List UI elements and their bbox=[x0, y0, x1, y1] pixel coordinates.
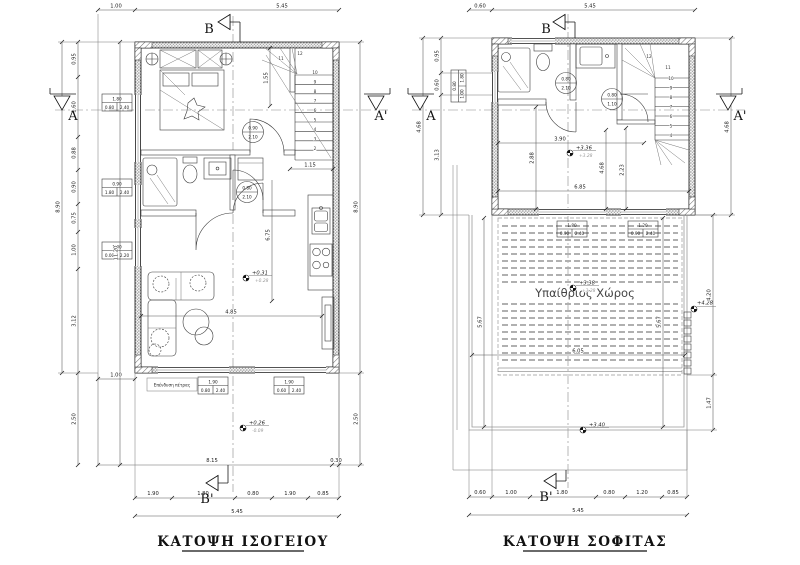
stair-number: 6 bbox=[670, 114, 673, 119]
svg-text:1.20: 1.20 bbox=[636, 490, 648, 496]
svg-text:1.15: 1.15 bbox=[304, 163, 316, 169]
svg-text:1.10: 1.10 bbox=[607, 102, 617, 107]
svg-text:2.20: 2.20 bbox=[120, 253, 130, 258]
corner-hatch-blocks bbox=[135, 42, 339, 373]
svg-text:3.90: 3.90 bbox=[554, 137, 566, 143]
section-letter: A bbox=[425, 109, 436, 124]
svg-text:2.40: 2.40 bbox=[216, 388, 226, 393]
svg-text:2.50: 2.50 bbox=[354, 413, 360, 425]
svg-text:4.20: 4.20 bbox=[707, 289, 713, 301]
attic-stairs: 4 5 6 7 8 9 10 11 12 bbox=[622, 44, 689, 165]
exterior-step-blocks bbox=[684, 312, 691, 374]
svg-text:0.60: 0.60 bbox=[435, 79, 441, 91]
svg-text:0.75: 0.75 bbox=[72, 212, 78, 224]
level-sub-value: +0.28 bbox=[255, 278, 269, 284]
svg-text:0.85: 0.85 bbox=[317, 491, 329, 497]
svg-text:0.80: 0.80 bbox=[607, 93, 617, 98]
stair-number: 10 bbox=[312, 70, 318, 75]
attic-fixtures bbox=[498, 44, 615, 92]
svg-text:0.90: 0.90 bbox=[631, 231, 641, 236]
svg-text:5.45: 5.45 bbox=[276, 4, 288, 10]
svg-text:1.00: 1.00 bbox=[505, 490, 517, 496]
svg-text:4.68: 4.68 bbox=[600, 162, 606, 174]
svg-text:8.90: 8.90 bbox=[354, 201, 360, 213]
stair-number: 11 bbox=[278, 56, 284, 61]
window-tag: 1.90 0.80 2.40 bbox=[198, 377, 228, 394]
window-tag-rotated: 0.80 1.00 1.80 bbox=[451, 70, 466, 102]
stair-number: 7 bbox=[670, 105, 673, 110]
ground-opening-tags: 1.80 0.80 2.40 0.90 1.80 2.40 1.00 0.00 … bbox=[102, 94, 304, 394]
svg-text:6.85: 6.85 bbox=[574, 185, 586, 191]
window-tag: 1.20 0.90 2.40 bbox=[628, 221, 658, 237]
svg-text:0.85: 0.85 bbox=[667, 490, 679, 496]
svg-text:3.13: 3.13 bbox=[435, 149, 441, 161]
svg-text:0.90: 0.90 bbox=[72, 181, 78, 193]
stair-number: 4 bbox=[670, 133, 673, 138]
svg-text:2.40: 2.40 bbox=[120, 105, 130, 110]
stair-number: 5 bbox=[314, 118, 317, 123]
window-tag: 1.80 0.90 2.40 bbox=[557, 221, 587, 237]
floor-plan-drawing: 2 3 4 5 6 7 8 9 10 11 12 bbox=[0, 0, 800, 565]
svg-text:2.40: 2.40 bbox=[292, 388, 302, 393]
svg-text:5.45: 5.45 bbox=[572, 508, 584, 514]
shower bbox=[498, 48, 530, 92]
svg-text:0.80: 0.80 bbox=[105, 105, 115, 110]
svg-text:1.80: 1.80 bbox=[105, 190, 115, 195]
stair-number: 3 bbox=[314, 137, 317, 142]
ground-furniture bbox=[143, 50, 334, 356]
svg-text:0.80: 0.80 bbox=[247, 491, 259, 497]
bed bbox=[160, 70, 224, 130]
stair-number: 4 bbox=[314, 127, 317, 132]
svg-text:0.90: 0.90 bbox=[112, 182, 122, 187]
stair-number: 8 bbox=[314, 89, 317, 94]
window-tag: 0.90 1.80 2.40 bbox=[102, 179, 132, 196]
svg-text:0.60: 0.60 bbox=[277, 388, 287, 393]
kitchen bbox=[308, 195, 333, 290]
stair-number: 8 bbox=[670, 95, 673, 100]
svg-text:0.30: 0.30 bbox=[330, 458, 342, 464]
door-tag: 0.80 1.10 bbox=[602, 89, 623, 110]
svg-text:0.90: 0.90 bbox=[248, 126, 258, 131]
door-tag: 0.90 2.10 bbox=[243, 122, 264, 143]
svg-text:6.75: 6.75 bbox=[266, 229, 272, 241]
svg-text:3.12: 3.12 bbox=[72, 315, 78, 327]
svg-text:4.85: 4.85 bbox=[225, 310, 237, 316]
svg-text:2.40: 2.40 bbox=[120, 190, 130, 195]
svg-text:2.10: 2.10 bbox=[242, 195, 252, 200]
svg-text:1.80: 1.80 bbox=[556, 490, 568, 496]
hall-cabinet bbox=[238, 158, 263, 180]
svg-text:0.80: 0.80 bbox=[201, 388, 211, 393]
section-letter: A' bbox=[374, 109, 388, 124]
section-letter: B bbox=[541, 22, 551, 37]
svg-text:0.80: 0.80 bbox=[603, 490, 615, 496]
svg-text:6.05: 6.05 bbox=[572, 349, 584, 355]
svg-text:1.20: 1.20 bbox=[638, 223, 648, 228]
wardrobe bbox=[146, 50, 232, 68]
svg-text:1.00: 1.00 bbox=[110, 373, 122, 379]
ground-stairs: 2 3 4 5 6 7 8 9 10 11 12 bbox=[262, 48, 333, 160]
svg-text:0.80: 0.80 bbox=[561, 77, 571, 82]
window-tag: 1.90 0.60 2.40 bbox=[274, 377, 304, 394]
level-value: +3.38 bbox=[579, 281, 596, 287]
attic-doors bbox=[546, 94, 648, 132]
svg-text:1.90: 1.90 bbox=[284, 380, 294, 385]
stair-number: 9 bbox=[314, 80, 317, 85]
level-value: +3.36 bbox=[576, 146, 593, 152]
svg-text:1.00: 1.00 bbox=[460, 89, 465, 99]
door-tag: 0.80 2.10 bbox=[237, 182, 258, 203]
svg-text:0.60: 0.60 bbox=[474, 490, 486, 496]
svg-text:1.90: 1.90 bbox=[284, 491, 296, 497]
svg-text:2.40: 2.40 bbox=[575, 231, 585, 236]
section-letter: B' bbox=[539, 490, 552, 505]
stair-number: 2 bbox=[314, 146, 317, 151]
level-value: +3.40 bbox=[589, 423, 606, 429]
svg-text:1.55: 1.55 bbox=[264, 72, 270, 84]
ground-plan-title: ΚΑΤΟΨΗ ΙΣΟΓΕΙΟΥ bbox=[157, 534, 329, 550]
svg-text:1.00: 1.00 bbox=[72, 244, 78, 256]
stair-number: 10 bbox=[668, 76, 674, 81]
svg-text:1.00: 1.00 bbox=[110, 4, 122, 10]
svg-text:2.10: 2.10 bbox=[561, 86, 571, 91]
svg-text:0.88: 0.88 bbox=[72, 147, 78, 159]
stair-number: 12 bbox=[646, 54, 652, 59]
svg-text:5.45: 5.45 bbox=[231, 509, 243, 515]
level-value: +0.26 bbox=[249, 421, 266, 427]
attic-title-block: ΚΑΤΟΨΗ ΣΟΦΙΤΑΣ bbox=[503, 534, 667, 551]
stair-number: 12 bbox=[297, 51, 303, 56]
svg-text:2.23: 2.23 bbox=[620, 164, 626, 176]
ground-title-block: ΚΑΤΟΨΗ ΙΣΟΓΕΙΟΥ bbox=[157, 534, 329, 551]
svg-text:1.80: 1.80 bbox=[460, 73, 465, 83]
door-tag: 0.80 2.10 bbox=[556, 73, 577, 94]
svg-text:2.88: 2.88 bbox=[530, 152, 536, 164]
stair-number: 9 bbox=[670, 86, 673, 91]
level-sub-value: -0.09 bbox=[252, 428, 264, 434]
svg-text:4.68: 4.68 bbox=[417, 121, 423, 133]
section-letter: A bbox=[67, 109, 78, 124]
svg-text:1.80: 1.80 bbox=[567, 223, 577, 228]
stair-number: 11 bbox=[665, 65, 671, 70]
bathroom-fixtures bbox=[143, 157, 231, 206]
attic-plan: 4 5 6 7 8 9 10 11 12 Υπαίθριος Χώρος bbox=[408, 4, 746, 552]
svg-text:1.47: 1.47 bbox=[707, 397, 713, 409]
svg-text:5.45: 5.45 bbox=[584, 4, 596, 10]
svg-text:1.90: 1.90 bbox=[147, 491, 159, 497]
ground-dimensions: 1.00 5.45 8.90 0.95 1.60 0.88 0.90 0.75 … bbox=[56, 4, 365, 519]
section-letter: A' bbox=[733, 109, 747, 124]
svg-text:0.80: 0.80 bbox=[242, 186, 252, 191]
svg-text:0.95: 0.95 bbox=[72, 53, 78, 65]
stair-number: 6 bbox=[314, 108, 317, 113]
window-openings bbox=[134, 95, 326, 374]
svg-text:0.90: 0.90 bbox=[560, 231, 570, 236]
svg-text:1.80: 1.80 bbox=[112, 97, 122, 102]
attic-plan-title: ΚΑΤΟΨΗ ΣΟΦΙΤΑΣ bbox=[503, 534, 667, 550]
level-value: +0.31 bbox=[252, 271, 268, 277]
attic-walls bbox=[491, 37, 695, 216]
window-tag: 1.80 0.80 2.40 bbox=[102, 94, 132, 111]
level-sub-value: +3.28 bbox=[582, 288, 596, 294]
stair-number: 5 bbox=[670, 124, 673, 129]
stair-number: 7 bbox=[314, 99, 317, 104]
wc-tank bbox=[534, 44, 552, 51]
svg-text:4.68: 4.68 bbox=[725, 121, 731, 133]
wc bbox=[537, 54, 550, 71]
svg-text:0.95: 0.95 bbox=[435, 50, 441, 62]
svg-text:5.67: 5.67 bbox=[657, 316, 663, 328]
svg-text:2.50: 2.50 bbox=[72, 413, 78, 425]
svg-text:2.40: 2.40 bbox=[646, 231, 656, 236]
svg-text:8.15: 8.15 bbox=[206, 458, 218, 464]
level-sub-value: +3.28 bbox=[579, 153, 593, 159]
svg-text:0.60: 0.60 bbox=[474, 4, 486, 10]
ground-level-markers: +0.31 +0.28 +0.26 -0.09 bbox=[240, 271, 272, 435]
architectural-sheet: 2 3 4 5 6 7 8 9 10 11 12 bbox=[0, 0, 800, 565]
svg-text:5.67: 5.67 bbox=[478, 316, 484, 328]
svg-text:2.10: 2.10 bbox=[248, 135, 258, 140]
svg-text:8.90: 8.90 bbox=[56, 201, 62, 213]
living-furniture bbox=[148, 272, 334, 356]
section-letter: B bbox=[204, 22, 214, 37]
svg-text:1.90: 1.90 bbox=[208, 380, 218, 385]
svg-text:0.80: 0.80 bbox=[452, 81, 457, 91]
ground-plan: 2 3 4 5 6 7 8 9 10 11 12 bbox=[50, 4, 390, 552]
kitchenette-counter bbox=[576, 44, 615, 68]
section-letter: B' bbox=[200, 492, 213, 507]
svg-text:11.20: 11.20 bbox=[114, 246, 120, 261]
stone-cladding-label: Επένδυση πέτρας bbox=[154, 383, 191, 388]
